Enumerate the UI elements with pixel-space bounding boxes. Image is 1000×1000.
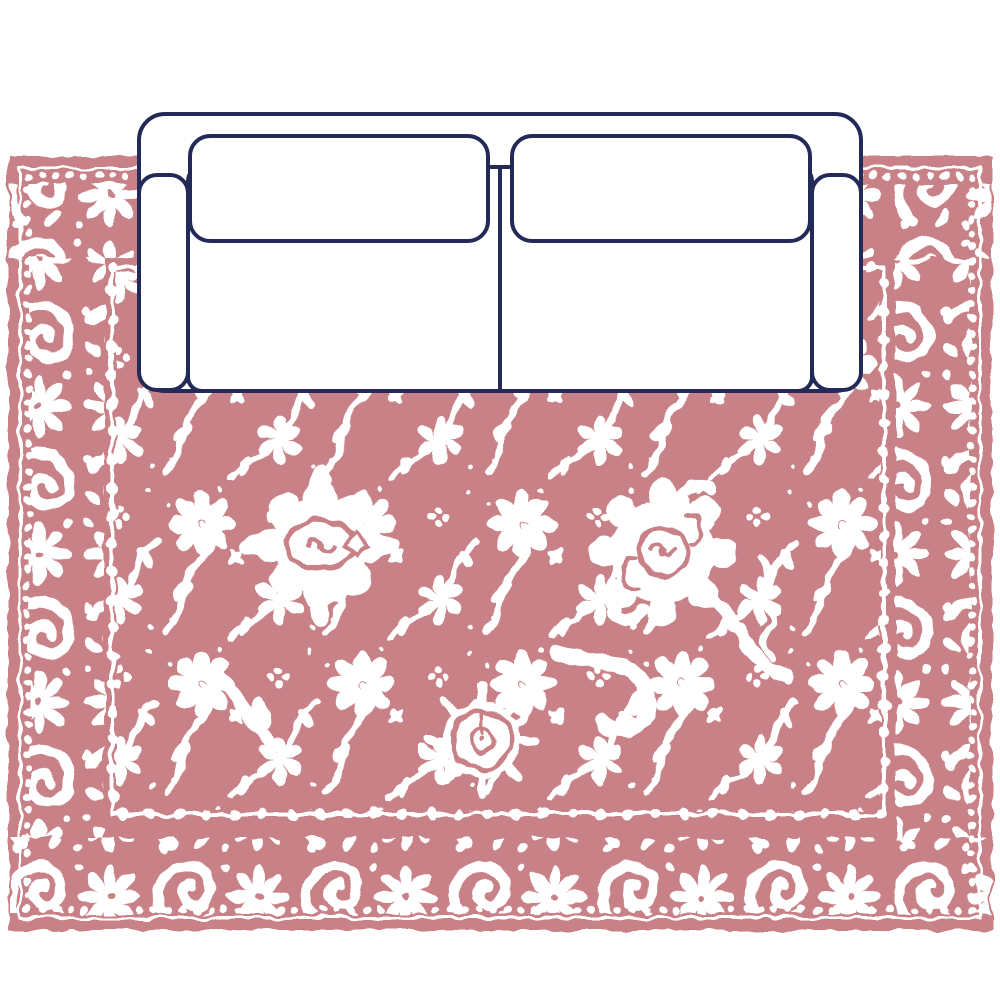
sofa-back-cushion-left: [190, 136, 488, 241]
rug-medallion-right: [590, 479, 736, 625]
sofa-armrest-left: [139, 175, 188, 390]
two-seat-sofa[interactable]: [139, 114, 861, 391]
sofa-on-rug-plan: [0, 0, 1000, 1000]
floorplan-canvas: [0, 0, 1000, 1000]
sofa-armrest-right: [812, 175, 861, 390]
rug-pomegranate-motif: [428, 686, 536, 794]
sofa-back-cushion-right: [512, 136, 810, 241]
